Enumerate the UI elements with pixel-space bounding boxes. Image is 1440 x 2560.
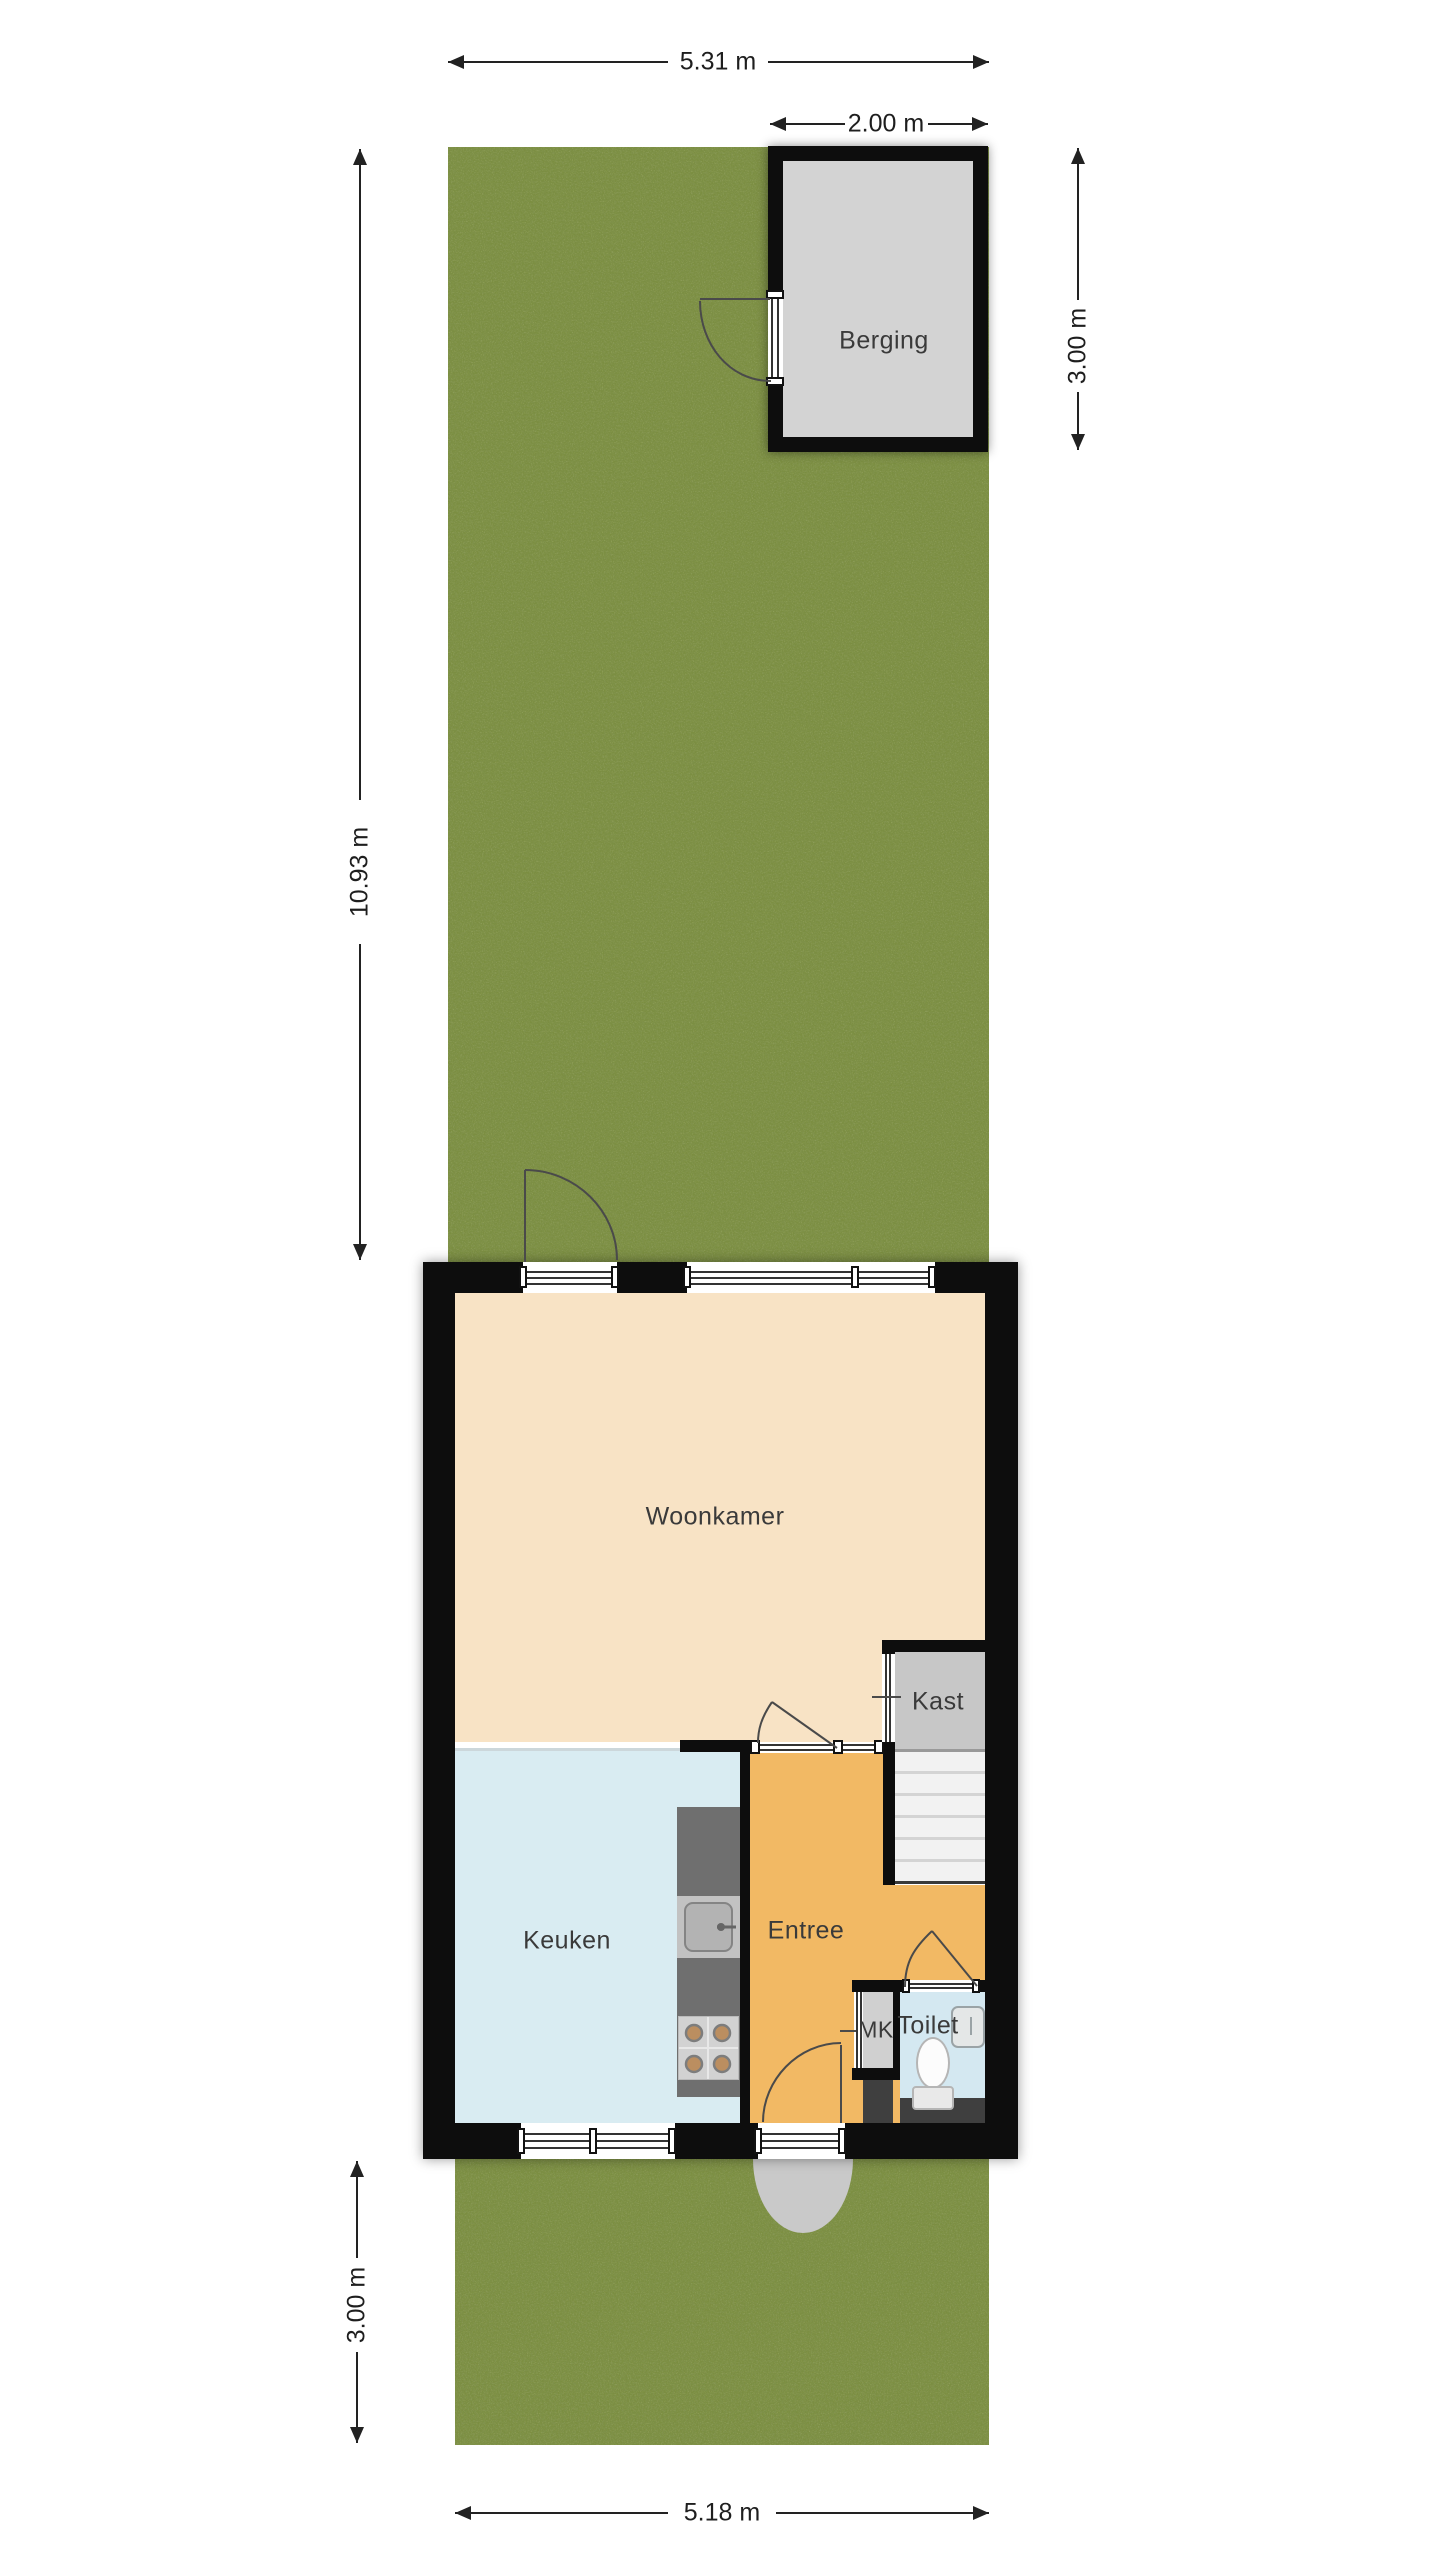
- arrowhead-icon: [350, 2427, 364, 2443]
- mk-wall-bottom: [852, 2068, 900, 2080]
- dimension-house-width: 5.18 m: [684, 2499, 760, 2528]
- floor-plan: Woonkamer Keuken Entree Kast MK Toilet B…: [0, 0, 1440, 2560]
- wall-top: [617, 1262, 687, 1293]
- entree-doorway-post: [833, 1740, 843, 1754]
- wall-right: [985, 1262, 1018, 2159]
- room-label-berging: Berging: [839, 327, 929, 356]
- arrowhead-icon: [350, 2161, 364, 2177]
- dimension-garden-width: 5.31 m: [680, 48, 756, 77]
- kitchen-sink-basin: [684, 1902, 733, 1952]
- wall-bottom: [455, 2123, 521, 2159]
- toilet-bowl: [916, 2037, 950, 2089]
- rear-window-post: [928, 1266, 936, 1288]
- front-door-frame-line: [758, 2140, 845, 2142]
- dimension-garden-depth: 10.93 m: [346, 827, 375, 917]
- front-door-post: [838, 2128, 846, 2154]
- arrowhead-icon: [448, 55, 464, 69]
- front-window-mullion: [589, 2128, 597, 2154]
- back-door-post: [519, 1266, 527, 1288]
- kast-wall-top: [882, 1640, 985, 1652]
- dimension-front-garden-depth: 3.00 m: [343, 2267, 372, 2343]
- toilet-doorway-post: [972, 1979, 980, 1993]
- entree-doorway-line: [750, 1744, 883, 1746]
- shed-door-jamb: [766, 377, 784, 386]
- wall-stub-keuken: [680, 1740, 750, 1752]
- rear-window-frame-line: [687, 1277, 935, 1279]
- arrowhead-icon: [455, 2506, 471, 2520]
- arrowhead-icon: [353, 1244, 367, 1260]
- shed-door-jamb: [766, 290, 784, 299]
- front-window-frame-line: [521, 2133, 675, 2135]
- staircase: [895, 1752, 985, 1881]
- arrowhead-icon: [973, 2506, 989, 2520]
- entree-doorway-post: [750, 1740, 760, 1754]
- mk-wall-top: [852, 1980, 900, 1992]
- rear-window-frame-line: [687, 1283, 935, 1285]
- toilet-cistern: [912, 2086, 954, 2110]
- wall-bottom: [845, 2123, 985, 2159]
- back-door-frame-line: [523, 1283, 617, 1285]
- mk-lower-cell: [863, 2080, 893, 2123]
- stairs-bottom-edge: [895, 1881, 985, 1884]
- entree-doorway-post: [874, 1740, 884, 1754]
- kast-door-line: [885, 1654, 887, 1742]
- toilet-doorway-line: [905, 1987, 980, 1989]
- front-window-post: [668, 2128, 676, 2154]
- rear-window-post: [683, 1266, 691, 1288]
- arrowhead-icon: [1071, 434, 1085, 450]
- wall-top: [455, 1262, 523, 1293]
- wall-left: [423, 1262, 455, 2159]
- front-window-frame-line: [521, 2140, 675, 2142]
- toilet-wall-top: [980, 1980, 985, 1992]
- room-label-keuken: Keuken: [523, 1927, 611, 1956]
- front-window-frame-line: [521, 2147, 675, 2149]
- room-berging: [783, 161, 973, 437]
- front-door-frame-line: [758, 2147, 845, 2149]
- toilet-doorway: [905, 1980, 980, 1992]
- room-label-entree: Entree: [768, 1917, 845, 1946]
- shed-door-panel-line: [777, 293, 779, 383]
- wall-stairs-left: [883, 1752, 895, 1885]
- toilet-doorway-line: [905, 1983, 980, 1985]
- room-label-woonkamer: Woonkamer: [646, 1503, 785, 1532]
- arrowhead-icon: [353, 149, 367, 165]
- wall-top: [935, 1262, 985, 1293]
- shed-door-panel-line: [771, 293, 773, 383]
- arrowhead-icon: [1071, 148, 1085, 164]
- wall-keuken-entree: [740, 1752, 750, 2123]
- arrowhead-icon: [973, 55, 989, 69]
- back-door-frame-line: [523, 1271, 617, 1273]
- entree-doorway-line: [750, 1749, 883, 1751]
- rear-window-mullion: [851, 1266, 859, 1288]
- wall-bottom: [675, 2123, 758, 2159]
- front-door-post: [754, 2128, 762, 2154]
- room-label-mk: MK: [858, 2017, 894, 2044]
- toilet-doorway-post: [902, 1979, 910, 1993]
- front-garden-grass: [455, 2159, 989, 2445]
- stove: [678, 2016, 739, 2080]
- dimension-shed-width: 2.00 m: [848, 110, 924, 139]
- rear-window-frame-line: [687, 1271, 935, 1273]
- back-door-post: [611, 1266, 619, 1288]
- back-door-frame-line: [523, 1277, 617, 1279]
- arrowhead-icon: [972, 117, 988, 131]
- kast-door-line: [889, 1654, 891, 1742]
- room-label-toilet: Toilet: [897, 2012, 958, 2041]
- room-label-kast: Kast: [912, 1688, 964, 1717]
- front-window-post: [517, 2128, 525, 2154]
- dimension-shed-depth: 3.00 m: [1064, 308, 1093, 384]
- arrowhead-icon: [770, 117, 786, 131]
- front-door-frame-line: [758, 2133, 845, 2135]
- grass-texture-light: [455, 2159, 989, 2445]
